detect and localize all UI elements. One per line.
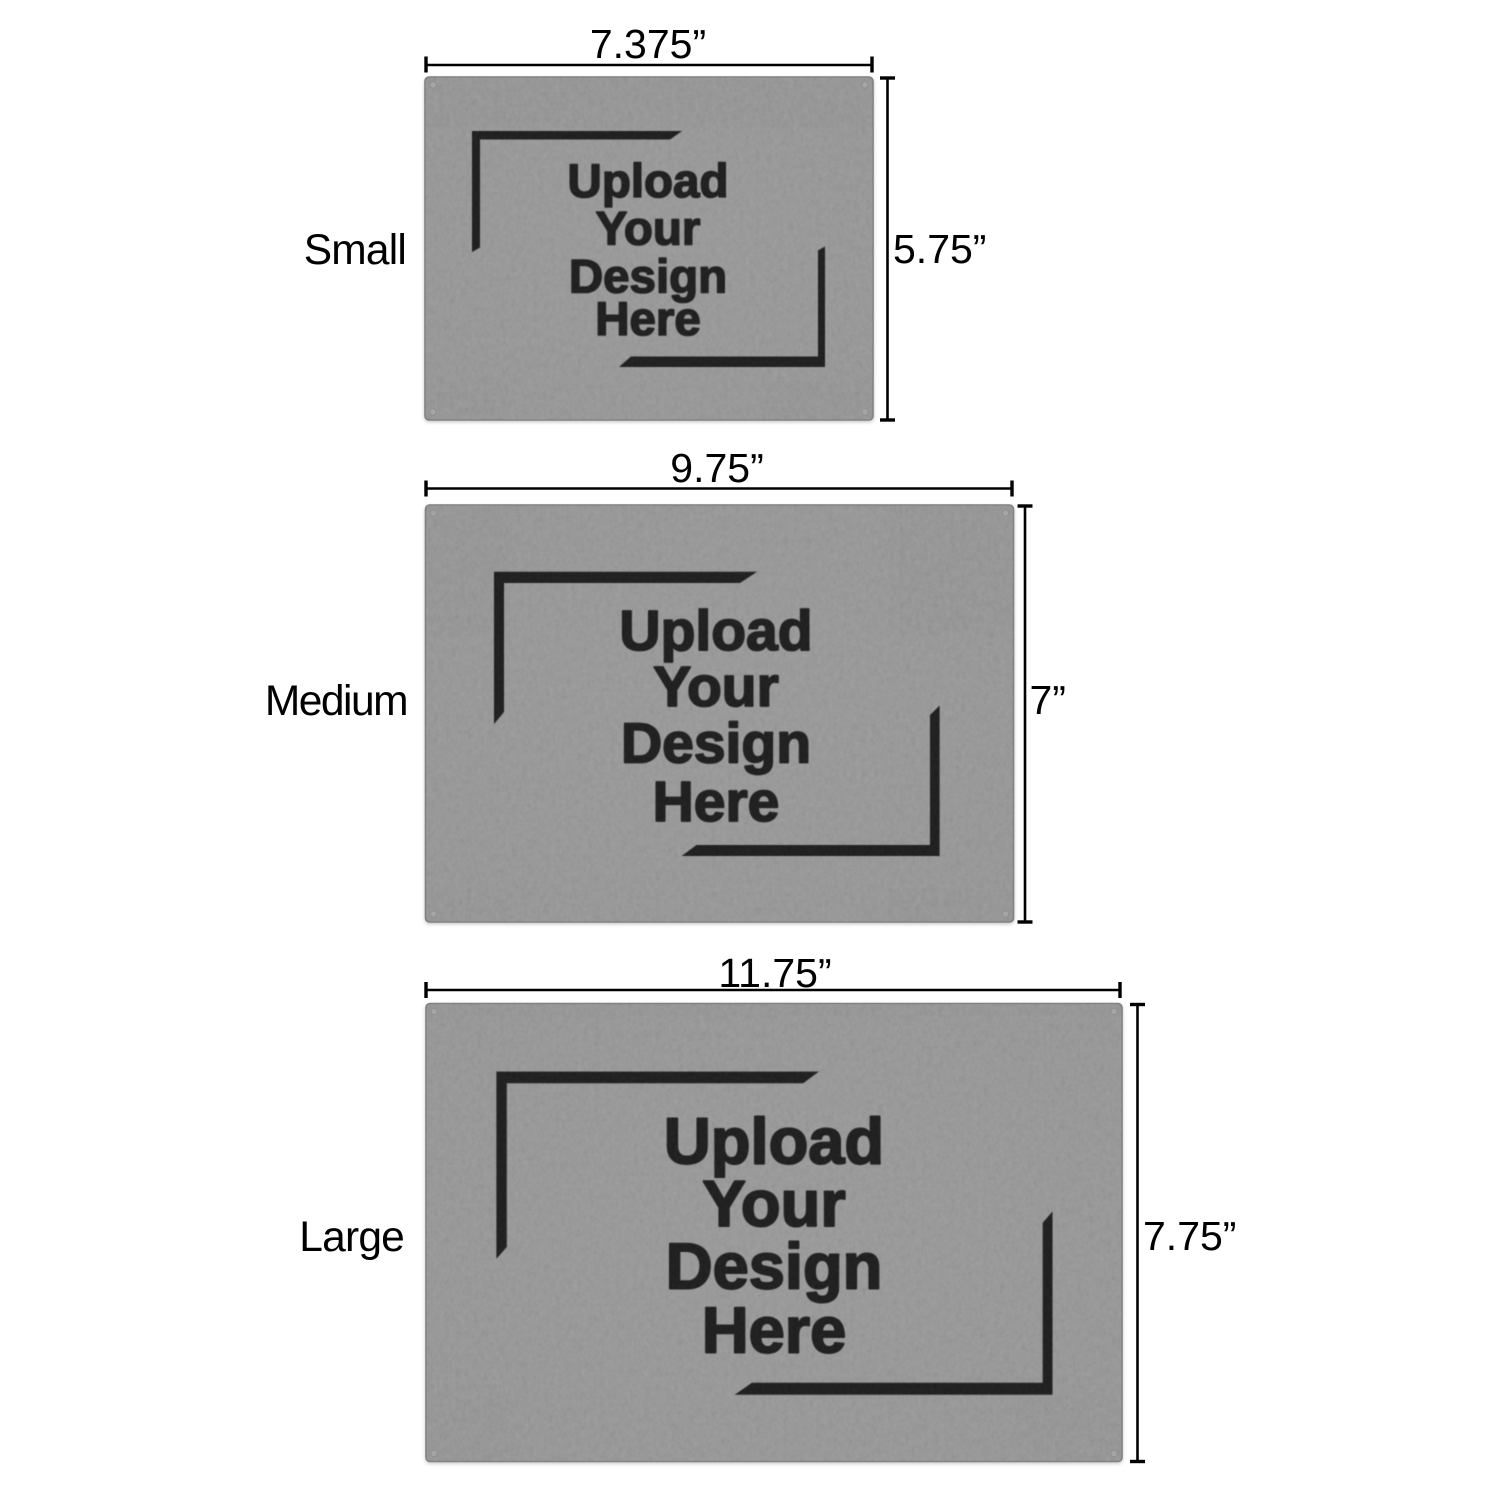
svg-text:Medium: Medium <box>265 678 407 725</box>
svg-text:7.75”: 7.75” <box>1143 1213 1236 1259</box>
svg-text:Small: Small <box>304 227 406 274</box>
svg-text:7.375”: 7.375” <box>590 21 706 67</box>
svg-text:5.75”: 5.75” <box>893 226 986 272</box>
svg-text:Large: Large <box>299 1214 404 1261</box>
svg-text:7”: 7” <box>1030 677 1066 723</box>
svg-text:9.75”: 9.75” <box>670 445 763 491</box>
svg-text:11.75”: 11.75” <box>718 950 831 996</box>
